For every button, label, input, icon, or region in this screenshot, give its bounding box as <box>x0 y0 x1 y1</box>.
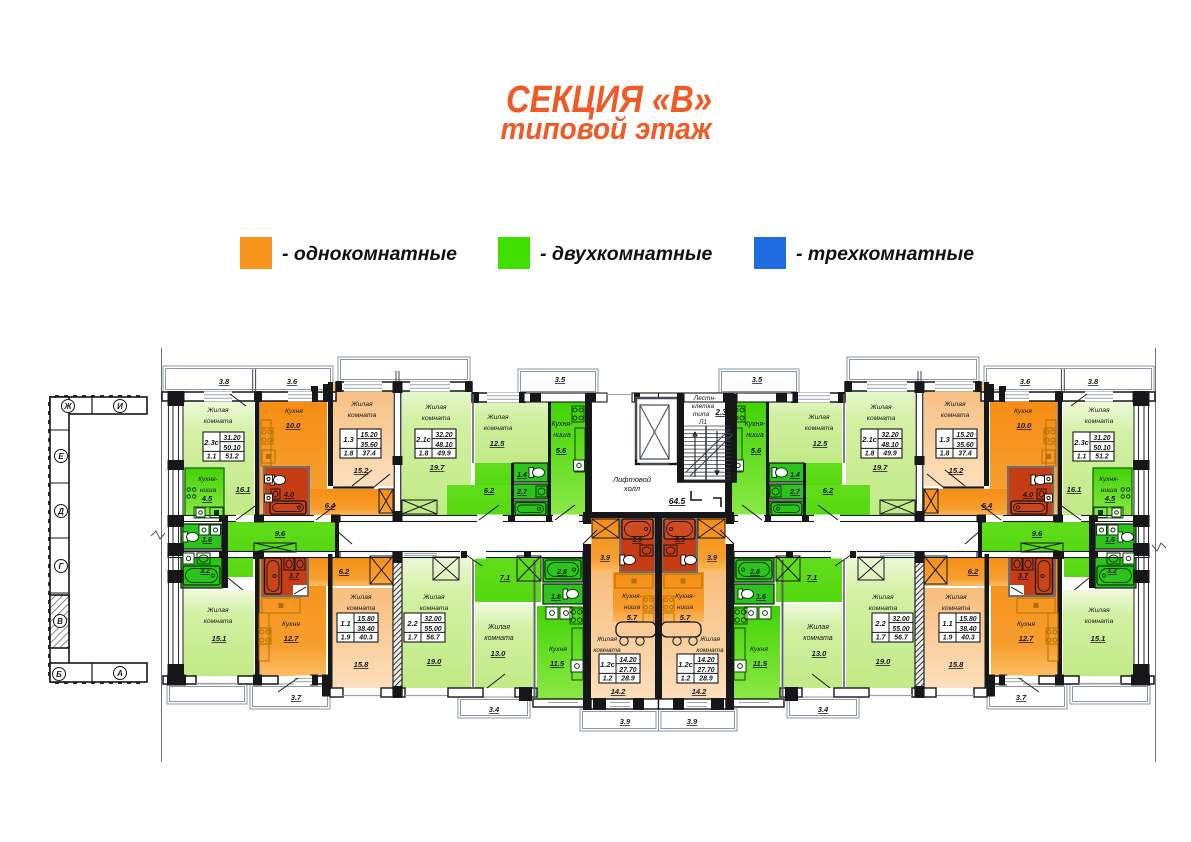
svg-text:комната: комната <box>484 635 513 642</box>
svg-text:Жилая: Жилая <box>869 404 892 411</box>
svg-text:48.10: 48.10 <box>434 442 452 449</box>
svg-text:комната: комната <box>869 605 898 612</box>
svg-text:Жилая: Жилая <box>422 594 445 601</box>
svg-text:Лифтовой: Лифтовой <box>612 475 652 484</box>
svg-text:1.1: 1.1 <box>340 619 351 628</box>
svg-text:14.20: 14.20 <box>697 657 714 664</box>
svg-text:Кухня-: Кухня- <box>552 421 574 428</box>
svg-text:ниша: ниша <box>677 604 694 611</box>
svg-text:Жилая: Жилая <box>349 594 372 601</box>
svg-text:56.7: 56.7 <box>426 635 441 642</box>
svg-text:3.5: 3.5 <box>555 375 566 384</box>
svg-text:3.4: 3.4 <box>489 705 500 714</box>
svg-text:3.2: 3.2 <box>200 568 210 575</box>
svg-text:1.8: 1.8 <box>865 451 875 458</box>
svg-text:комната: комната <box>347 605 376 612</box>
svg-text:14.2: 14.2 <box>692 687 707 696</box>
svg-text:7.1: 7.1 <box>807 573 818 582</box>
svg-text:комната: комната <box>805 425 834 432</box>
svg-text:5.7: 5.7 <box>680 613 691 622</box>
svg-text:1.2с: 1.2с <box>678 660 694 669</box>
svg-text:Жилая: Жилая <box>806 624 829 631</box>
svg-text:37.4: 37.4 <box>362 451 376 458</box>
svg-text:1.2: 1.2 <box>681 676 691 683</box>
svg-text:- трехкомнатные: - трехкомнатные <box>796 243 974 265</box>
svg-text:13.0: 13.0 <box>812 649 828 658</box>
svg-text:15.1: 15.1 <box>212 634 227 643</box>
svg-text:31.20: 31.20 <box>1093 435 1110 442</box>
svg-text:Жилая: Жилая <box>206 407 229 414</box>
svg-text:3.2: 3.2 <box>1107 568 1117 575</box>
svg-text:3.7: 3.7 <box>291 693 302 702</box>
svg-text:3.6: 3.6 <box>287 377 298 386</box>
svg-text:16.1: 16.1 <box>1067 485 1082 494</box>
svg-text:1.7: 1.7 <box>876 635 887 642</box>
svg-text:35.60: 35.60 <box>360 442 377 449</box>
svg-text:2.1с: 2.1с <box>861 435 878 444</box>
svg-text:- двухкомнатные: - двухкомнатные <box>540 243 713 265</box>
svg-text:2.1с: 2.1с <box>415 435 432 444</box>
svg-text:4.0: 4.0 <box>283 490 295 499</box>
svg-text:50.10: 50.10 <box>223 445 240 452</box>
svg-text:комната: комната <box>204 418 233 425</box>
svg-text:10.0: 10.0 <box>286 421 302 430</box>
svg-text:ниша: ниша <box>200 487 217 494</box>
svg-text:1.1: 1.1 <box>1077 454 1087 461</box>
svg-text:5.6: 5.6 <box>751 446 762 455</box>
svg-text:3.7: 3.7 <box>1018 571 1029 580</box>
svg-text:6.4: 6.4 <box>982 501 993 510</box>
svg-text:1.8: 1.8 <box>419 451 429 458</box>
svg-text:32.00: 32.00 <box>892 616 909 623</box>
svg-text:- однокомнатные: - однокомнатные <box>282 243 457 265</box>
svg-text:51.2: 51.2 <box>225 454 239 461</box>
svg-text:19.7: 19.7 <box>430 463 446 472</box>
svg-text:А: А <box>116 669 123 678</box>
svg-text:28.9: 28.9 <box>698 676 713 683</box>
svg-text:37.4: 37.4 <box>958 451 972 458</box>
svg-text:Жилая: Жилая <box>871 594 894 601</box>
svg-text:1.8: 1.8 <box>940 451 950 458</box>
svg-text:Кухня-: Кухня- <box>1099 476 1119 483</box>
svg-text:2.2: 2.2 <box>874 619 886 628</box>
svg-text:1.3: 1.3 <box>939 435 950 444</box>
svg-text:Кухня: Кухня <box>1014 408 1032 415</box>
svg-text:Жилая: Жилая <box>424 404 447 411</box>
svg-text:комната: комната <box>484 425 513 432</box>
svg-text:Жилая: Жилая <box>1087 407 1110 414</box>
svg-text:1.2: 1.2 <box>603 676 613 683</box>
svg-text:32.20: 32.20 <box>881 432 898 439</box>
svg-text:Жилая: Жилая <box>596 636 618 643</box>
svg-text:15.2: 15.2 <box>354 466 370 475</box>
svg-text:Кухня: Кухня <box>285 408 303 415</box>
svg-text:комната: комната <box>1085 618 1114 625</box>
svg-text:2.7: 2.7 <box>789 489 801 496</box>
svg-text:Лестн-: Лестн- <box>693 395 717 402</box>
svg-text:3.8: 3.8 <box>219 377 230 386</box>
svg-text:19.7: 19.7 <box>873 463 889 472</box>
svg-text:Кухня-: Кухня- <box>622 593 642 600</box>
svg-text:1.9: 1.9 <box>341 635 351 642</box>
svg-text:типа: типа <box>693 411 710 418</box>
svg-text:4.5: 4.5 <box>1104 494 1116 503</box>
svg-text:6.2: 6.2 <box>823 486 834 495</box>
svg-text:Кухня-: Кухня- <box>675 593 695 600</box>
svg-text:ниша: ниша <box>553 432 571 439</box>
svg-text:1.2с: 1.2с <box>600 660 616 669</box>
svg-text:6.2: 6.2 <box>339 567 350 576</box>
svg-text:15.8: 15.8 <box>354 660 370 669</box>
svg-text:2.8: 2.8 <box>556 569 567 576</box>
svg-text:Жилая: Жилая <box>943 401 966 408</box>
svg-text:1.9: 1.9 <box>943 635 953 642</box>
svg-text:Жилая: Жилая <box>699 636 721 643</box>
svg-text:12.7: 12.7 <box>284 634 300 643</box>
svg-text:38.40: 38.40 <box>959 626 976 633</box>
svg-text:3.8: 3.8 <box>1088 377 1099 386</box>
svg-text:1.4: 1.4 <box>517 472 527 479</box>
svg-text:комната: комната <box>204 618 233 625</box>
svg-text:ниша: ниша <box>1101 487 1118 494</box>
svg-text:Жилая: Жилая <box>1087 607 1110 614</box>
svg-text:2.3с: 2.3с <box>1073 438 1090 447</box>
svg-text:38.40: 38.40 <box>357 626 374 633</box>
svg-text:комната: комната <box>942 605 971 612</box>
svg-text:комната: комната <box>593 647 621 654</box>
svg-text:15.2: 15.2 <box>949 466 965 475</box>
svg-text:комната: комната <box>803 635 832 642</box>
svg-text:1.7: 1.7 <box>408 635 419 642</box>
svg-text:11.5: 11.5 <box>550 659 565 668</box>
svg-text:комната: комната <box>867 415 896 422</box>
svg-text:1.4: 1.4 <box>790 472 800 479</box>
svg-text:комната: комната <box>941 412 970 419</box>
svg-text:16.1: 16.1 <box>236 485 251 494</box>
svg-text:комната: комната <box>420 605 449 612</box>
svg-text:1.1: 1.1 <box>942 619 953 628</box>
svg-text:12.7: 12.7 <box>1019 634 1035 643</box>
svg-text:3.9: 3.9 <box>675 537 685 544</box>
svg-text:9.6: 9.6 <box>1032 529 1043 538</box>
svg-text:15.80: 15.80 <box>357 616 374 623</box>
svg-text:В: В <box>57 617 63 626</box>
svg-text:клетка: клетка <box>692 403 715 410</box>
svg-text:3.5: 3.5 <box>752 375 763 384</box>
svg-text:типовой этаж: типовой этаж <box>501 111 714 146</box>
svg-text:40.3: 40.3 <box>960 635 975 642</box>
svg-text:27.70: 27.70 <box>696 667 714 674</box>
svg-text:1.3: 1.3 <box>343 435 354 444</box>
svg-text:10.0: 10.0 <box>1017 421 1033 430</box>
svg-text:комната: комната <box>348 412 377 419</box>
svg-text:Кухня-: Кухня- <box>198 476 218 483</box>
svg-text:3.9: 3.9 <box>600 555 610 562</box>
svg-text:12.5: 12.5 <box>813 439 829 448</box>
svg-text:7.1: 7.1 <box>500 573 511 582</box>
svg-text:3.6: 3.6 <box>1020 377 1031 386</box>
svg-text:Жилая: Жилая <box>944 594 967 601</box>
svg-text:50.10: 50.10 <box>1093 445 1110 452</box>
svg-text:Д: Д <box>57 507 64 516</box>
svg-text:3.7: 3.7 <box>289 571 300 580</box>
svg-text:15.20: 15.20 <box>956 432 973 439</box>
svg-text:15.8: 15.8 <box>949 660 965 669</box>
svg-text:14.20: 14.20 <box>619 657 636 664</box>
svg-text:Кухня: Кухня <box>1017 621 1035 628</box>
svg-text:Ж: Ж <box>63 402 72 411</box>
svg-text:6.2: 6.2 <box>484 486 495 495</box>
svg-text:11.5: 11.5 <box>753 659 768 668</box>
svg-text:3.7: 3.7 <box>1016 693 1027 702</box>
svg-text:3.4: 3.4 <box>818 705 829 714</box>
svg-text:19.0: 19.0 <box>876 657 892 666</box>
svg-text:Жилая: Жилая <box>206 607 229 614</box>
svg-text:40.3: 40.3 <box>358 635 373 642</box>
svg-text:3.9: 3.9 <box>707 555 717 562</box>
svg-text:51.2: 51.2 <box>1095 454 1109 461</box>
svg-text:Кухня: Кухня <box>549 646 567 653</box>
svg-text:2.2: 2.2 <box>406 619 418 628</box>
svg-text:49.9: 49.9 <box>882 451 897 458</box>
svg-text:32.00: 32.00 <box>424 616 441 623</box>
svg-text:32.20: 32.20 <box>435 432 452 439</box>
svg-text:4.0: 4.0 <box>1022 490 1034 499</box>
svg-text:2.8: 2.8 <box>749 569 760 576</box>
svg-text:14.2: 14.2 <box>611 687 626 696</box>
svg-text:Жилая: Жилая <box>350 401 373 408</box>
svg-text:15.80: 15.80 <box>959 616 976 623</box>
svg-text:19.0: 19.0 <box>427 657 443 666</box>
svg-text:15.1: 15.1 <box>1091 634 1106 643</box>
svg-text:12.5: 12.5 <box>490 439 506 448</box>
svg-text:6.4: 6.4 <box>325 501 336 510</box>
svg-text:28.9: 28.9 <box>620 676 635 683</box>
svg-text:1.6: 1.6 <box>756 594 766 601</box>
svg-text:35.60: 35.60 <box>956 442 973 449</box>
svg-text:Кухня: Кухня <box>282 621 300 628</box>
svg-text:3.9: 3.9 <box>620 717 631 726</box>
svg-text:ниша: ниша <box>746 432 764 439</box>
svg-text:13.0: 13.0 <box>491 649 507 658</box>
svg-text:ниша: ниша <box>624 604 641 611</box>
svg-text:27.70: 27.70 <box>618 667 636 674</box>
svg-text:49.9: 49.9 <box>436 451 451 458</box>
svg-text:5.6: 5.6 <box>556 446 567 455</box>
svg-text:1.6: 1.6 <box>551 594 561 601</box>
svg-text:комната: комната <box>1085 418 1114 425</box>
svg-text:56.7: 56.7 <box>894 635 909 642</box>
svg-text:6.2: 6.2 <box>968 567 979 576</box>
svg-text:Е: Е <box>58 452 64 461</box>
svg-text:3.9: 3.9 <box>632 537 642 544</box>
svg-text:64.5: 64.5 <box>669 496 686 506</box>
svg-text:4.5: 4.5 <box>201 494 213 503</box>
svg-text:2.3: 2.3 <box>714 408 727 417</box>
svg-text:9.6: 9.6 <box>275 529 286 538</box>
svg-text:холл: холл <box>623 484 641 493</box>
svg-text:1.8: 1.8 <box>344 451 354 458</box>
svg-text:1.6: 1.6 <box>1105 537 1115 544</box>
svg-text:комната: комната <box>696 647 724 654</box>
svg-text:48.10: 48.10 <box>880 442 898 449</box>
svg-text:5.7: 5.7 <box>627 613 638 622</box>
svg-text:1.6: 1.6 <box>202 537 212 544</box>
svg-text:Жилая: Жилая <box>486 414 509 421</box>
svg-text:1.1: 1.1 <box>207 454 217 461</box>
svg-text:И: И <box>117 402 123 411</box>
svg-text:31.20: 31.20 <box>223 435 240 442</box>
svg-text:Л1: Л1 <box>698 419 707 426</box>
svg-text:55.00: 55.00 <box>424 626 441 633</box>
svg-text:55.00: 55.00 <box>892 626 909 633</box>
svg-text:3.9: 3.9 <box>687 717 698 726</box>
svg-text:Жилая: Жилая <box>487 624 510 631</box>
svg-text:15.20: 15.20 <box>360 432 377 439</box>
svg-text:2.7: 2.7 <box>516 489 528 496</box>
svg-text:Кухня: Кухня <box>750 646 768 653</box>
svg-text:Б: Б <box>56 670 62 679</box>
svg-text:комната: комната <box>422 415 451 422</box>
svg-text:Кухня-: Кухня- <box>745 421 767 428</box>
svg-text:2.3с: 2.3с <box>203 438 220 447</box>
svg-text:Жилая: Жилая <box>807 414 830 421</box>
